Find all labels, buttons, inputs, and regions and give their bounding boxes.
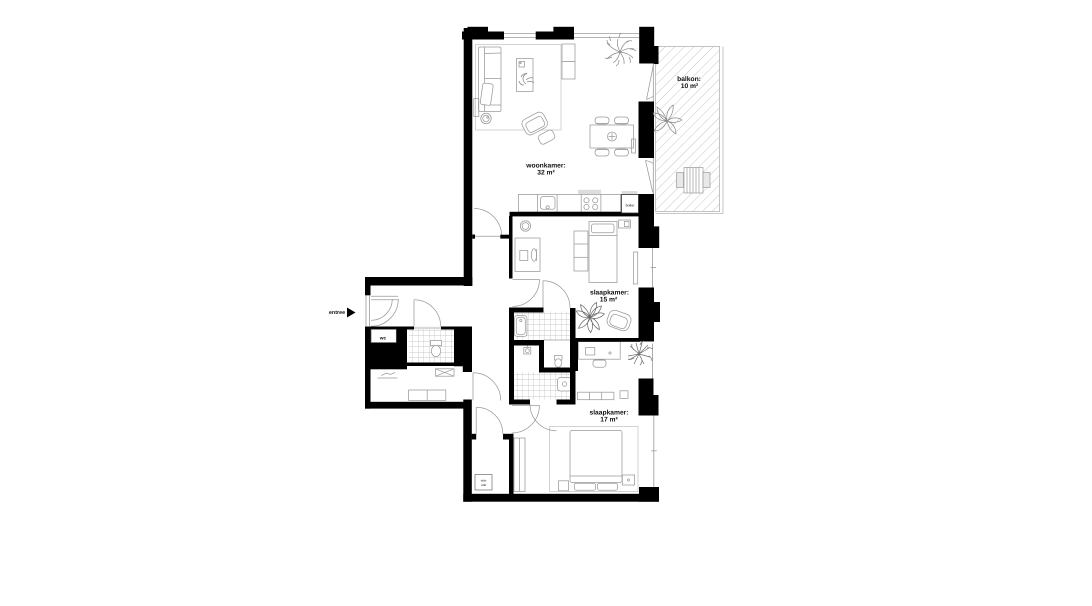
svg-text:entree: entree — [329, 310, 345, 316]
svg-text:unit: unit — [481, 483, 486, 487]
svg-text:slaapkamer:: slaapkamer: — [589, 410, 628, 417]
svg-text:balkon:: balkon: — [677, 76, 701, 83]
svg-text:wc: wc — [379, 337, 387, 342]
svg-text:15 m²: 15 m² — [600, 297, 618, 304]
svg-text:woonkamer:: woonkamer: — [525, 162, 565, 169]
svg-text:wtw: wtw — [481, 479, 487, 483]
svg-text:10 m²: 10 m² — [681, 83, 699, 90]
svg-text:boiler: boiler — [626, 204, 636, 208]
svg-text:slaapkamer:: slaapkamer: — [590, 289, 629, 296]
svg-text:17 m²: 17 m² — [600, 417, 618, 424]
svg-text:32 m²: 32 m² — [537, 169, 555, 176]
